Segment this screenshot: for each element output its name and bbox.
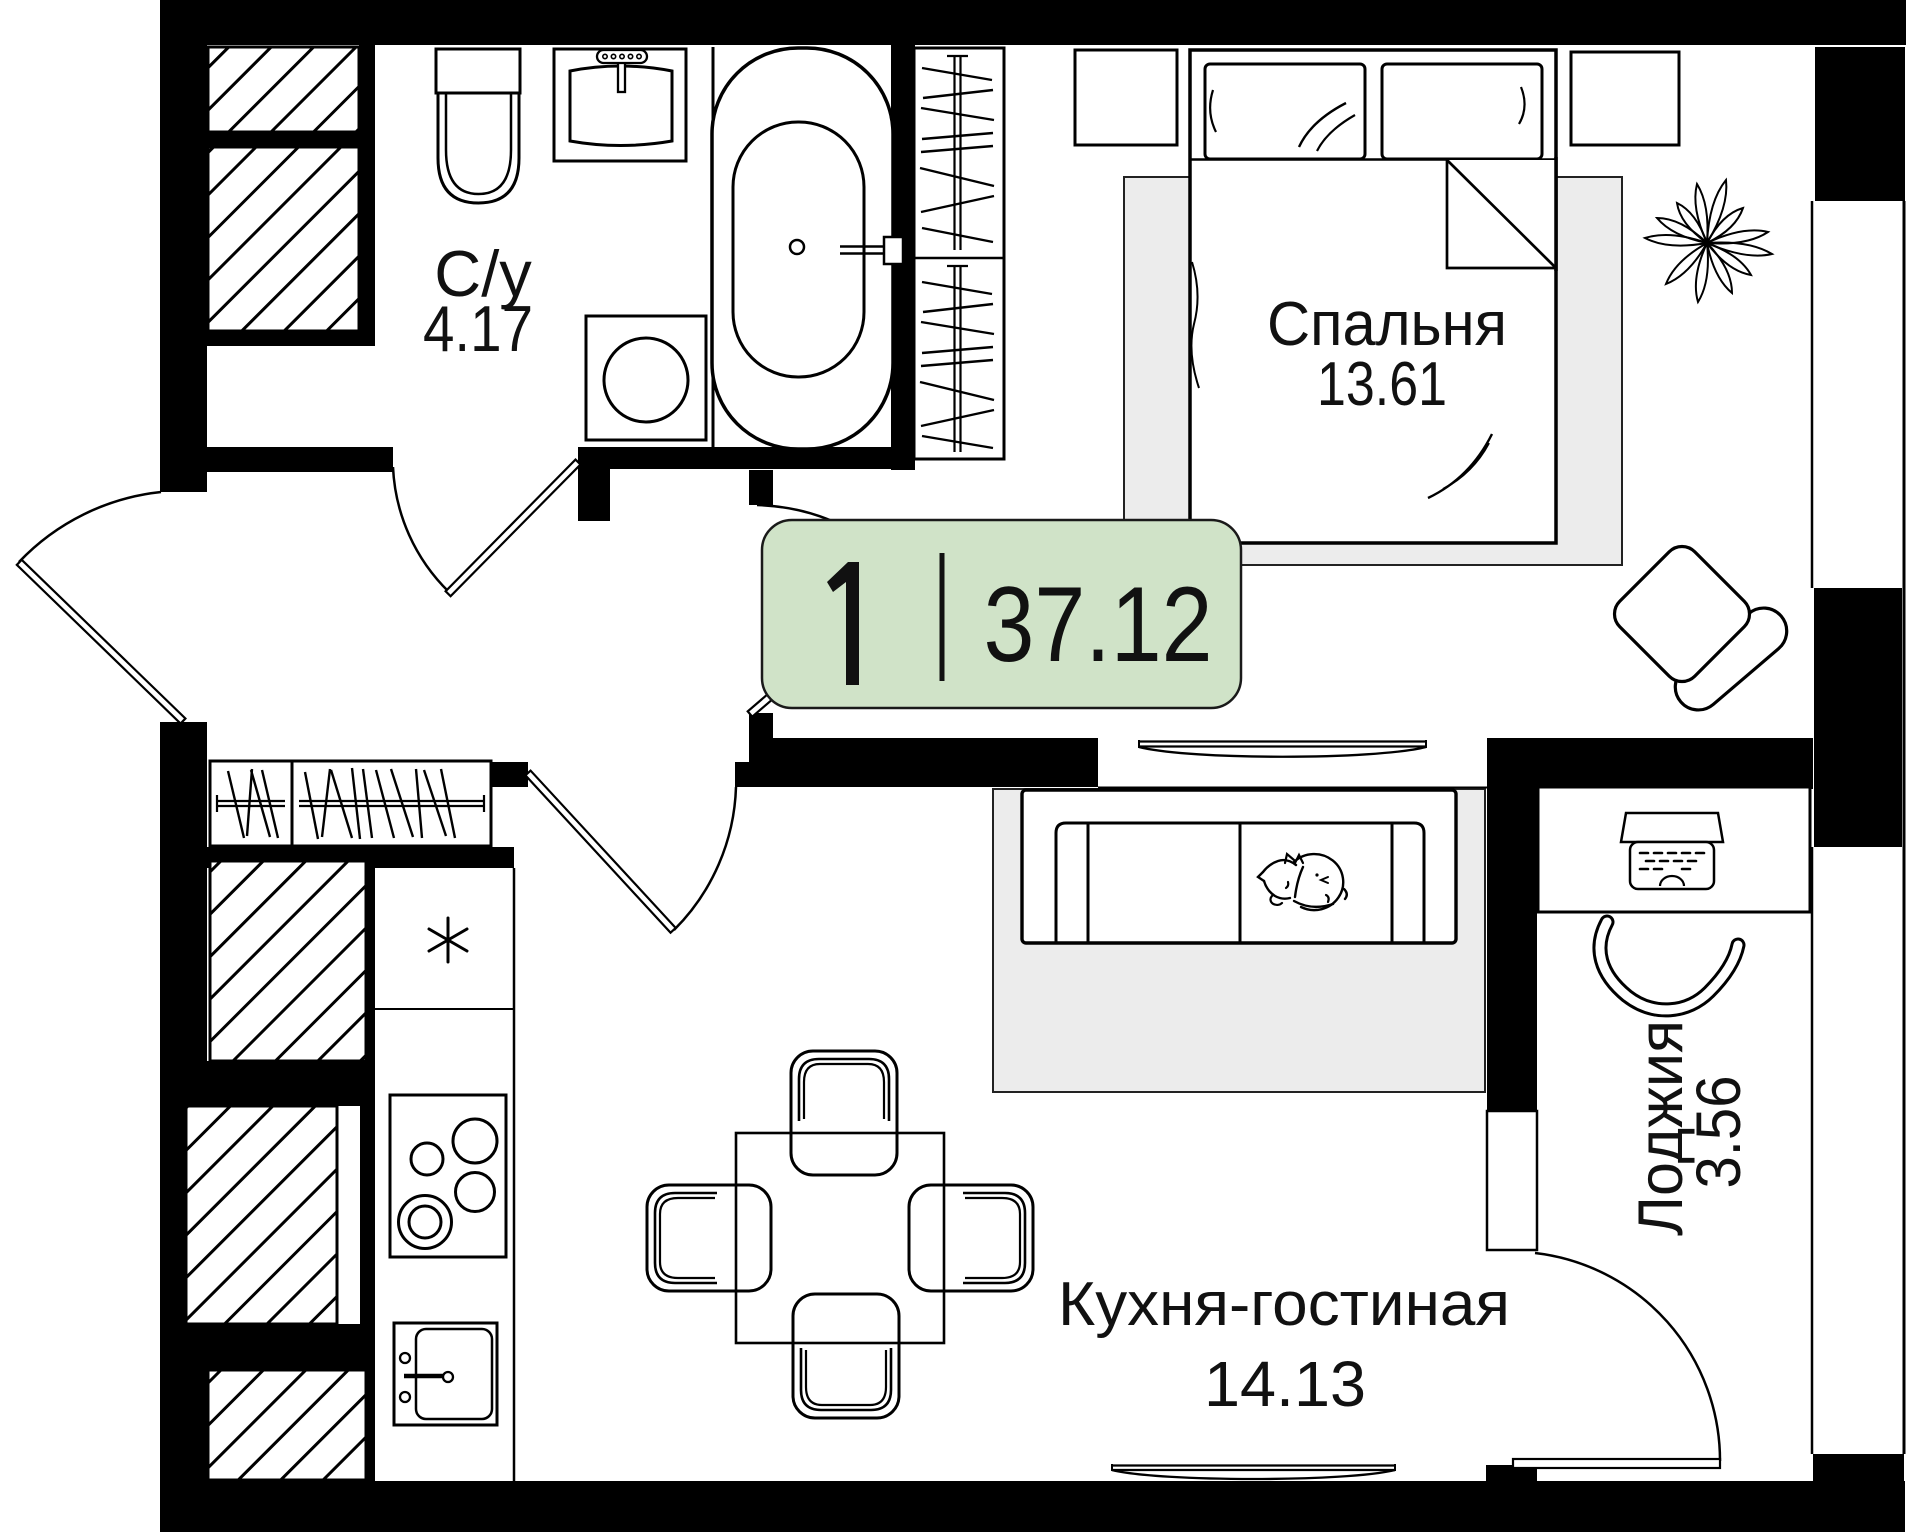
svg-text:Спальня: Спальня (1267, 290, 1507, 359)
svg-text:Кухня-гостиная: Кухня-гостиная (1058, 1270, 1510, 1339)
svg-text:4.17: 4.17 (423, 292, 533, 365)
svg-text:3.56: 3.56 (1684, 1076, 1754, 1189)
svg-text:37.12: 37.12 (984, 564, 1213, 684)
svg-text:13.61: 13.61 (1317, 350, 1447, 419)
svg-text:14.13: 14.13 (1204, 1348, 1366, 1420)
